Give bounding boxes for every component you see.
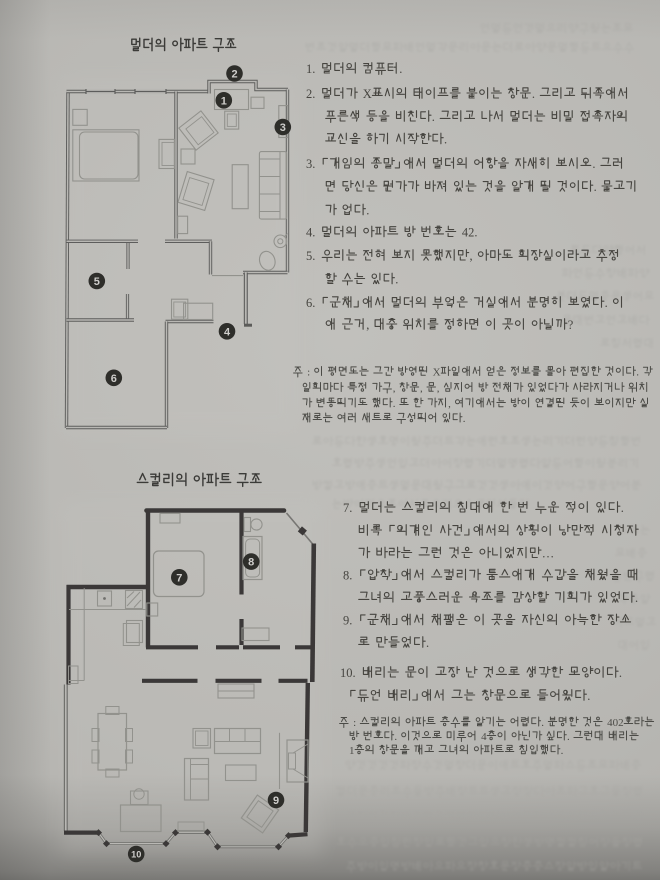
svg-text:,: , <box>420 382 423 394</box>
svg-text:X: X <box>363 87 372 101</box>
svg-text:.: . <box>393 398 396 410</box>
svg-text:,: , <box>448 398 451 410</box>
svg-text::: : <box>353 717 356 729</box>
svg-text:9: 9 <box>273 795 279 807</box>
svg-text:9.: 9. <box>343 614 352 628</box>
svg-text:5: 5 <box>94 276 100 288</box>
svg-text:.: . <box>399 62 402 76</box>
svg-text:,: , <box>437 382 440 394</box>
svg-text:10: 10 <box>131 849 141 859</box>
svg-text:4: 4 <box>481 731 487 743</box>
svg-text:4.: 4. <box>306 226 315 240</box>
svg-text:.: . <box>463 413 466 425</box>
svg-text:7: 7 <box>176 572 182 584</box>
svg-text:402: 402 <box>607 717 624 729</box>
svg-text:.: . <box>561 745 564 757</box>
svg-text:.: . <box>619 666 622 680</box>
svg-text:.: . <box>621 501 624 515</box>
svg-text:1.: 1. <box>306 62 315 76</box>
svg-text:.: . <box>395 273 398 287</box>
svg-text:42.: 42. <box>462 226 478 240</box>
svg-text:?: ? <box>568 318 574 332</box>
svg-text:.: . <box>541 717 544 729</box>
svg-text:2: 2 <box>231 69 237 81</box>
svg-text:8.: 8. <box>343 569 352 583</box>
svg-text:,: , <box>366 318 369 332</box>
svg-text:6: 6 <box>111 373 117 385</box>
svg-text:1: 1 <box>349 745 355 757</box>
svg-text:4: 4 <box>224 326 231 338</box>
svg-text:.: . <box>532 87 535 101</box>
svg-text:3: 3 <box>280 122 286 134</box>
svg-text:.: . <box>636 366 639 378</box>
svg-text:.: . <box>426 636 429 650</box>
svg-text:3.: 3. <box>306 157 315 171</box>
svg-text:,: , <box>470 249 473 263</box>
svg-text:7.: 7. <box>343 501 352 515</box>
svg-text:.: . <box>444 133 447 147</box>
svg-text:.: . <box>394 731 397 743</box>
svg-text:8: 8 <box>248 557 254 569</box>
svg-text:5.: 5. <box>306 249 315 263</box>
svg-text:.: . <box>366 204 369 218</box>
svg-text::: : <box>307 366 310 378</box>
svg-text:…: … <box>542 547 555 561</box>
svg-text:10.: 10. <box>340 666 356 680</box>
svg-text:X: X <box>433 366 441 378</box>
svg-text:6.: 6. <box>306 296 315 310</box>
svg-text:.: . <box>635 591 638 605</box>
svg-text:.: . <box>594 180 597 194</box>
svg-text:.: . <box>567 731 570 743</box>
svg-text:.: . <box>587 689 590 703</box>
svg-text:2.: 2. <box>306 87 315 101</box>
svg-text:1: 1 <box>221 95 227 107</box>
svg-text:.: . <box>432 110 435 124</box>
svg-text:.: . <box>605 296 608 310</box>
svg-text:,: , <box>393 382 396 394</box>
svg-text:.: . <box>592 157 595 171</box>
